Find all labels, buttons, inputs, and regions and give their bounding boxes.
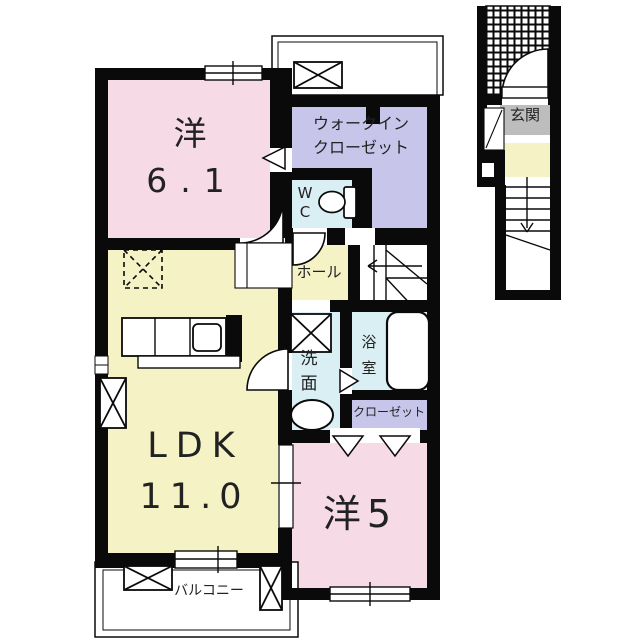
label-balcony: バルコニー (153, 584, 265, 599)
label-wic-line2: クローゼット (300, 139, 422, 157)
label-western-6-1-name: 洋 (130, 116, 250, 152)
label-closet: クローゼット (350, 406, 428, 419)
label-hall: ホール (291, 264, 347, 281)
refrigerator-space-dashed (124, 250, 162, 288)
hall-opening-panel (235, 243, 292, 288)
label-wic-line1: ウォークイン (300, 115, 422, 133)
label-wc: W C (295, 184, 315, 222)
washbasin-icon (291, 400, 333, 430)
vent-box-top-balcony (294, 62, 342, 88)
label-ldk-size: 11.0 (112, 478, 277, 517)
staircase-entry (506, 177, 550, 250)
bathtub-icon (387, 312, 429, 390)
label-ldk-name: LDK (118, 427, 273, 466)
kitchen-counter (122, 318, 240, 368)
kitchen-sink (193, 324, 221, 351)
floorplan-canvas: 洋 6.1 ウォークイン クローゼット W C ホール 洗 面 浴 室 クローゼ… (0, 0, 640, 640)
floor-plan-svg (0, 0, 640, 640)
label-washroom: 洗 面 (298, 347, 320, 396)
label-western-5: 洋5 (300, 494, 420, 536)
window-ldk-left (95, 356, 108, 374)
window-box-ldk-left (100, 378, 126, 428)
kitchen-counter-edge (138, 356, 240, 368)
entry-landing (502, 143, 550, 177)
entrance-door-leaf (502, 87, 548, 98)
label-bathroom: 浴 室 (358, 329, 380, 382)
label-western-6-1-size: 6.1 (112, 163, 272, 199)
room-western-6-1 (108, 80, 270, 238)
label-entrance: 玄関 (500, 107, 550, 124)
